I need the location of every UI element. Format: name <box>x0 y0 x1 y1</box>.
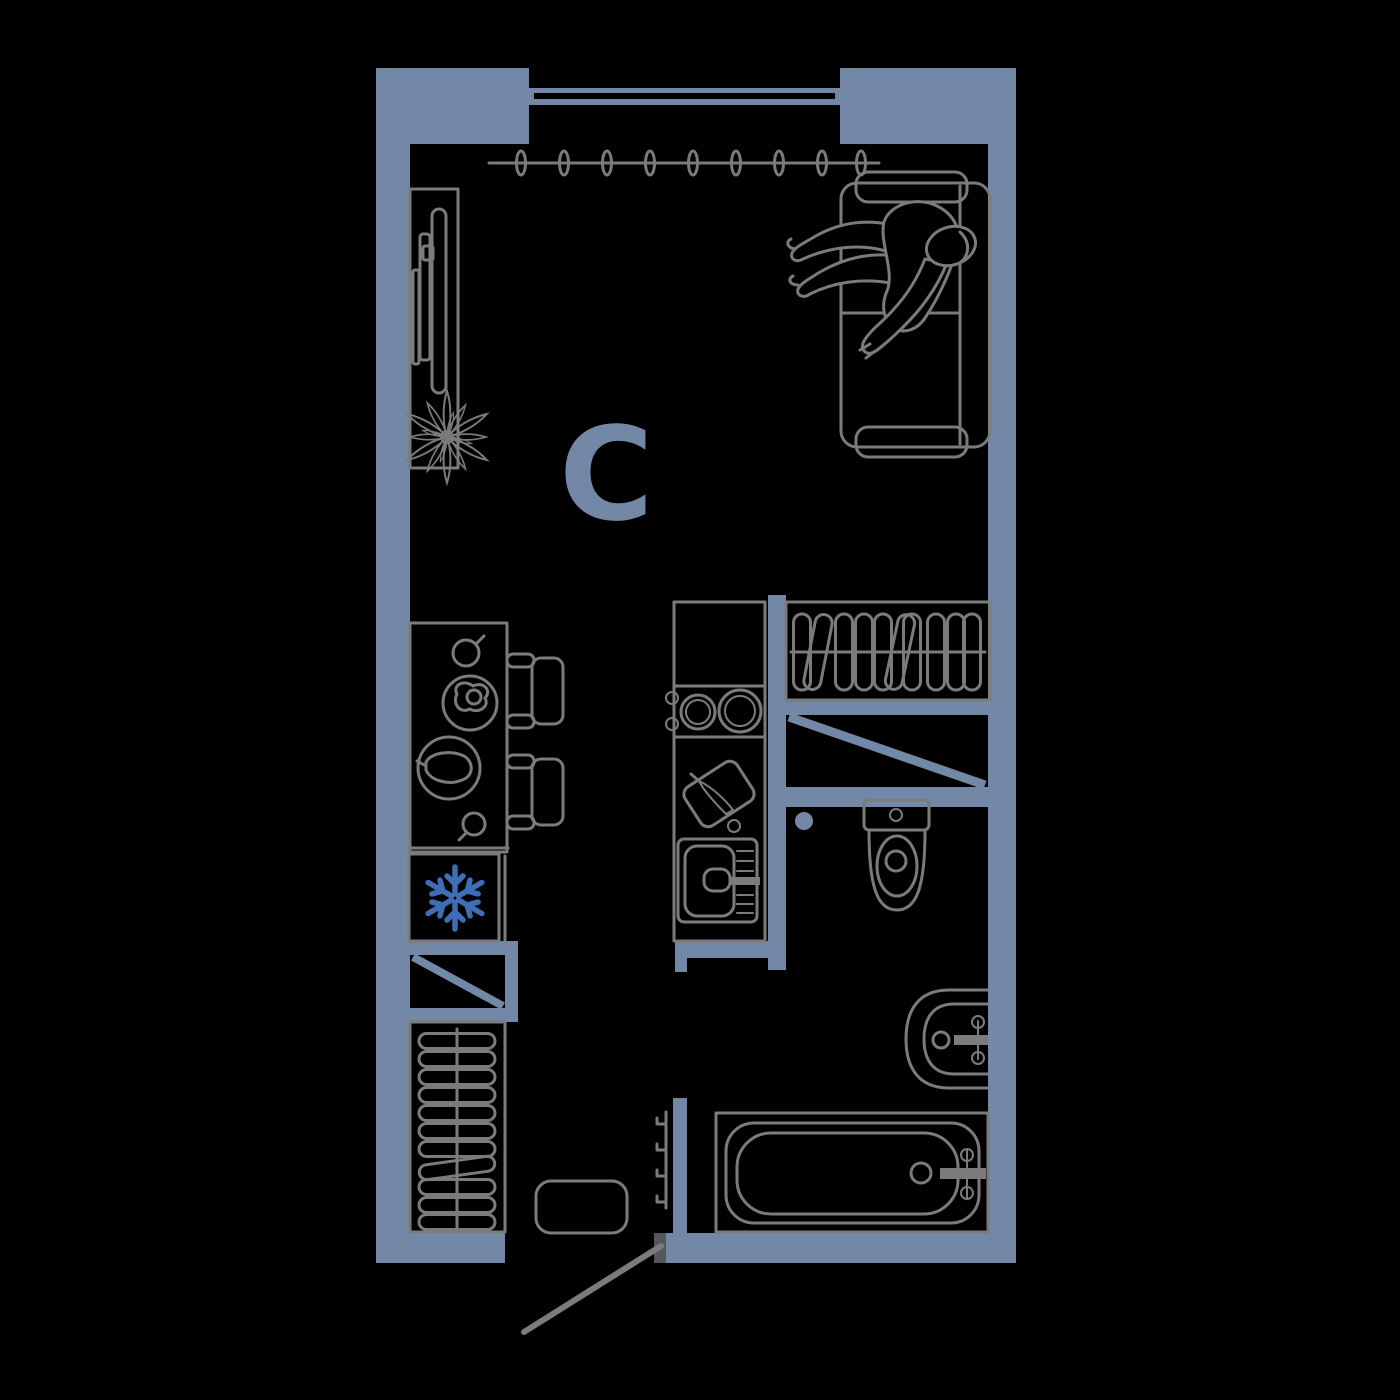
basin-drain <box>933 1032 949 1048</box>
knife-blade <box>699 781 733 814</box>
kitchen-bath-partition <box>768 595 786 970</box>
food-drumstick <box>426 753 471 783</box>
toilet-button <box>890 809 902 821</box>
hallway <box>410 1022 666 1332</box>
stove-knob <box>666 718 678 730</box>
vent-shaft-diagonal <box>789 717 985 785</box>
under-counter-wall <box>675 941 784 958</box>
under-fridge-wall <box>376 941 517 955</box>
room-label: C <box>559 400 654 550</box>
faucet-handle <box>704 869 730 891</box>
left-wall <box>376 68 410 1263</box>
under-counter-stub <box>675 955 687 972</box>
tv-back-plate <box>413 270 419 364</box>
chair-seat <box>532 759 563 825</box>
toilet <box>864 800 929 910</box>
wardrobe-bottom-wall <box>786 700 990 715</box>
tub-drain <box>911 1163 931 1183</box>
chair-arm <box>507 654 534 667</box>
cutting-board-knife <box>680 758 757 832</box>
fridge <box>409 848 508 941</box>
stove-burner-inner <box>725 696 755 726</box>
bottom-left-wall <box>376 1233 505 1263</box>
tv-screen <box>432 209 446 393</box>
egg-white <box>455 683 487 711</box>
tub-faucet-bar <box>940 1168 986 1179</box>
person-foot <box>788 239 795 249</box>
snowflake-icon <box>424 867 486 929</box>
above-closet-wall <box>376 1008 517 1022</box>
wash-basin <box>906 990 988 1088</box>
tub-inner <box>737 1133 958 1214</box>
bottom-right-wall <box>666 1233 1016 1263</box>
top-left-wall-block <box>376 68 529 144</box>
basin-faucet-bar <box>954 1035 988 1045</box>
bath-top-wall <box>786 787 990 807</box>
person-foot <box>790 276 798 285</box>
toilet-bowl-inner <box>877 836 917 896</box>
chair-arm <box>507 816 534 829</box>
bathtub <box>716 1113 988 1232</box>
sofa-armrest-bottom <box>856 427 967 457</box>
stove-knob <box>666 692 678 704</box>
chair-arm <box>507 715 534 728</box>
knife-handle <box>691 774 699 781</box>
duct-diagonal <box>413 957 503 1006</box>
chair-arm <box>507 755 534 768</box>
curtain-rail <box>489 151 879 175</box>
entry-door-leaf <box>524 1246 661 1332</box>
board-hole <box>728 820 740 832</box>
kitchen-block <box>666 602 765 941</box>
entry-stool <box>536 1181 627 1233</box>
bath-left-wall <box>673 1098 687 1235</box>
cup-handle <box>459 833 466 840</box>
tv-notch <box>423 246 433 260</box>
stove-burner-inner <box>686 700 710 724</box>
window <box>529 88 840 105</box>
floor-plan: C <box>0 0 1400 1400</box>
floor-plan-canvas: C <box>0 0 1400 1400</box>
closet-hangers <box>410 1022 505 1232</box>
faucet-bar <box>728 877 760 885</box>
chair-seat <box>532 658 563 724</box>
window-glass-slit <box>534 93 835 99</box>
sofa-armrest-top <box>856 172 967 202</box>
right-wall <box>988 68 1016 1263</box>
wall-hooks <box>657 1112 666 1208</box>
cup-handle <box>476 636 484 644</box>
floor-drain <box>795 812 813 830</box>
toilet-drain <box>886 851 906 871</box>
dining-set <box>410 623 563 852</box>
wardrobe-hangers <box>786 602 990 700</box>
kitchen-sink <box>678 839 760 922</box>
egg-yolk <box>467 690 481 704</box>
person-lying <box>788 202 981 358</box>
